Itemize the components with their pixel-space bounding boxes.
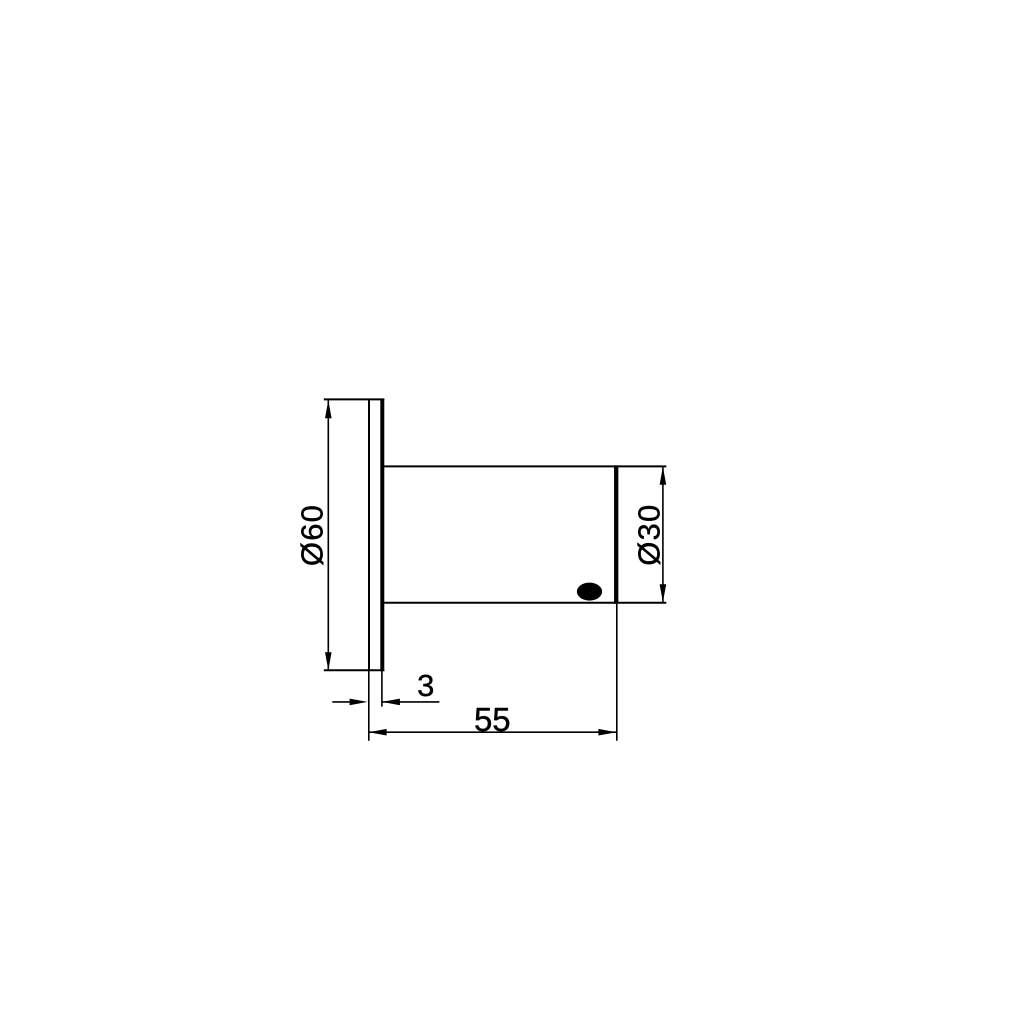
svg-text:3: 3 <box>417 668 434 703</box>
svg-text:Ø30: Ø30 <box>632 504 667 566</box>
svg-text:55: 55 <box>474 701 511 738</box>
svg-text:Ø60: Ø60 <box>295 504 330 566</box>
